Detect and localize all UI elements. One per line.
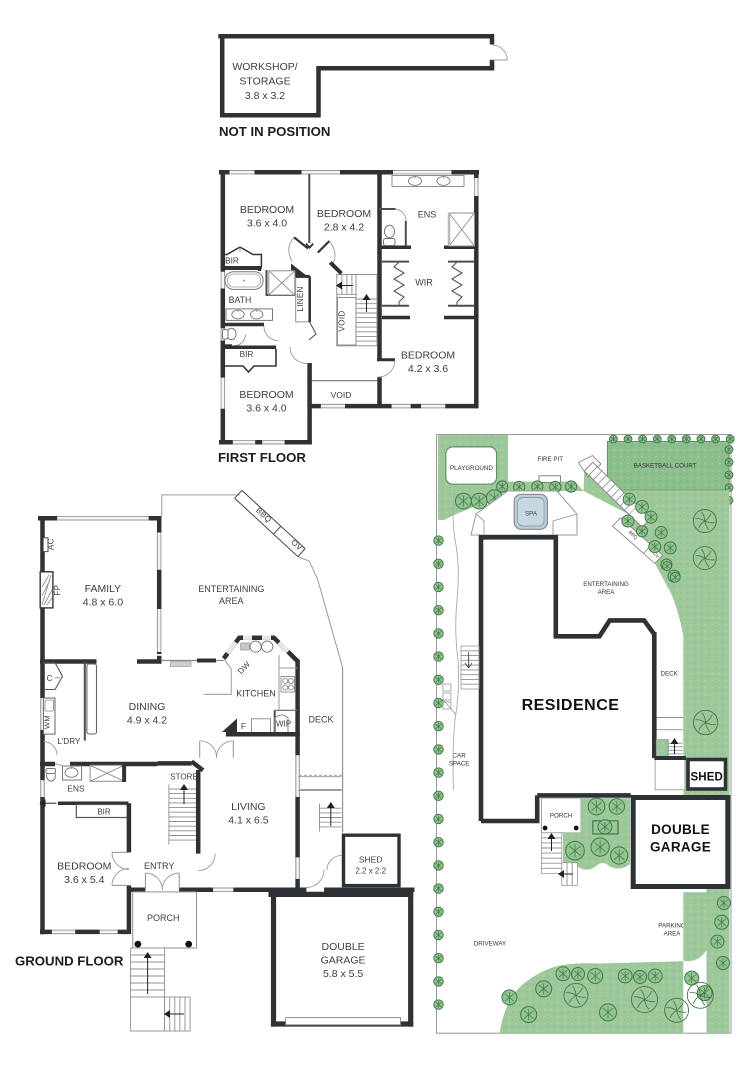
svg-text:GARAGE: GARAGE	[650, 840, 711, 855]
svg-text:BIR: BIR	[225, 257, 239, 266]
svg-text:C: C	[47, 674, 53, 683]
svg-text:4.9 x 4.2: 4.9 x 4.2	[127, 715, 167, 727]
svg-text:DECK: DECK	[308, 715, 333, 725]
svg-text:STORE: STORE	[170, 773, 197, 782]
svg-text:WORKSHOP/: WORKSHOP/	[232, 61, 297, 73]
svg-text:ENTERTAINING: ENTERTAINING	[583, 581, 629, 588]
svg-text:DOUBLE: DOUBLE	[651, 822, 710, 837]
svg-text:3.6 x 4.0: 3.6 x 4.0	[246, 403, 286, 415]
svg-text:3.6 x 4.0: 3.6 x 4.0	[247, 218, 287, 230]
svg-text:LIVING: LIVING	[231, 801, 265, 813]
svg-text:BATH: BATH	[229, 295, 252, 305]
svg-text:3.8 x 3.2: 3.8 x 3.2	[245, 90, 285, 102]
svg-text:PARKING: PARKING	[658, 923, 686, 930]
svg-text:ENS: ENS	[67, 784, 85, 794]
svg-text:ENTRY: ENTRY	[144, 861, 174, 871]
svg-text:RESIDENCE: RESIDENCE	[522, 697, 620, 714]
svg-text:GROUND FLOOR: GROUND FLOOR	[15, 954, 124, 969]
svg-text:BIR: BIR	[240, 350, 254, 359]
svg-text:CAR: CAR	[453, 753, 467, 760]
svg-text:AREA: AREA	[219, 596, 244, 606]
svg-text:SHED: SHED	[359, 855, 383, 865]
svg-text:WIR: WIR	[415, 278, 433, 288]
svg-text:DINING: DINING	[129, 701, 166, 713]
svg-text:SPA: SPA	[525, 511, 538, 518]
svg-text:BIR: BIR	[97, 808, 111, 817]
svg-text:2.8 x 4.2: 2.8 x 4.2	[324, 222, 364, 234]
svg-text:4.2 x 3.6: 4.2 x 3.6	[408, 363, 448, 375]
svg-text:WIP: WIP	[276, 720, 291, 729]
svg-text:GARAGE: GARAGE	[321, 955, 366, 967]
svg-text:AREA: AREA	[664, 931, 682, 938]
svg-text:BEDROOM: BEDROOM	[239, 389, 293, 401]
svg-text:SHED: SHED	[691, 772, 723, 784]
svg-text:DECK: DECK	[660, 671, 678, 678]
svg-text:BEDROOM: BEDROOM	[57, 861, 111, 873]
svg-text:PORCH: PORCH	[147, 913, 180, 923]
svg-text:ENTERTAINING: ENTERTAINING	[198, 584, 264, 594]
svg-text:AC: AC	[47, 538, 56, 550]
svg-text:FIRST FLOOR: FIRST FLOOR	[218, 450, 306, 465]
svg-text:FP: FP	[53, 585, 62, 596]
svg-text:AREA: AREA	[598, 589, 616, 596]
svg-text:4.1 x 6.5: 4.1 x 6.5	[228, 815, 268, 827]
svg-text:BASKETBALL COURT: BASKETBALL COURT	[634, 463, 697, 470]
svg-text:2.2 x 2.2: 2.2 x 2.2	[355, 867, 386, 876]
svg-text:L’DRY: L’DRY	[57, 737, 81, 746]
svg-text:FAMILY: FAMILY	[85, 583, 122, 595]
svg-text:SPACE: SPACE	[449, 761, 470, 768]
svg-text:WM: WM	[43, 715, 52, 729]
svg-text:5.8 x 5.5: 5.8 x 5.5	[323, 968, 363, 980]
svg-text:BEDROOM: BEDROOM	[240, 204, 294, 216]
svg-text:BEDROOM: BEDROOM	[401, 350, 455, 362]
svg-text:BEDROOM: BEDROOM	[317, 208, 371, 220]
svg-text:4.8 x 6.0: 4.8 x 6.0	[83, 597, 123, 609]
svg-text:VOID: VOID	[331, 390, 352, 400]
svg-text:FIRE PIT: FIRE PIT	[538, 456, 564, 463]
svg-text:DOUBLE: DOUBLE	[322, 941, 365, 953]
svg-text:F: F	[241, 721, 246, 731]
svg-text:NOT IN POSITION: NOT IN POSITION	[219, 124, 330, 139]
svg-text:KITCHEN: KITCHEN	[236, 689, 276, 699]
svg-text:PLAYGROUND: PLAYGROUND	[450, 465, 493, 472]
svg-text:VOID: VOID	[337, 310, 346, 331]
svg-text:PORCH: PORCH	[550, 813, 572, 820]
svg-text:3.6 x 5.4: 3.6 x 5.4	[64, 874, 104, 886]
svg-text:LINEN: LINEN	[296, 286, 305, 311]
svg-text:DRIVEWAY: DRIVEWAY	[474, 941, 506, 948]
svg-text:ENS: ENS	[418, 210, 437, 220]
svg-text:STORAGE: STORAGE	[239, 76, 290, 88]
